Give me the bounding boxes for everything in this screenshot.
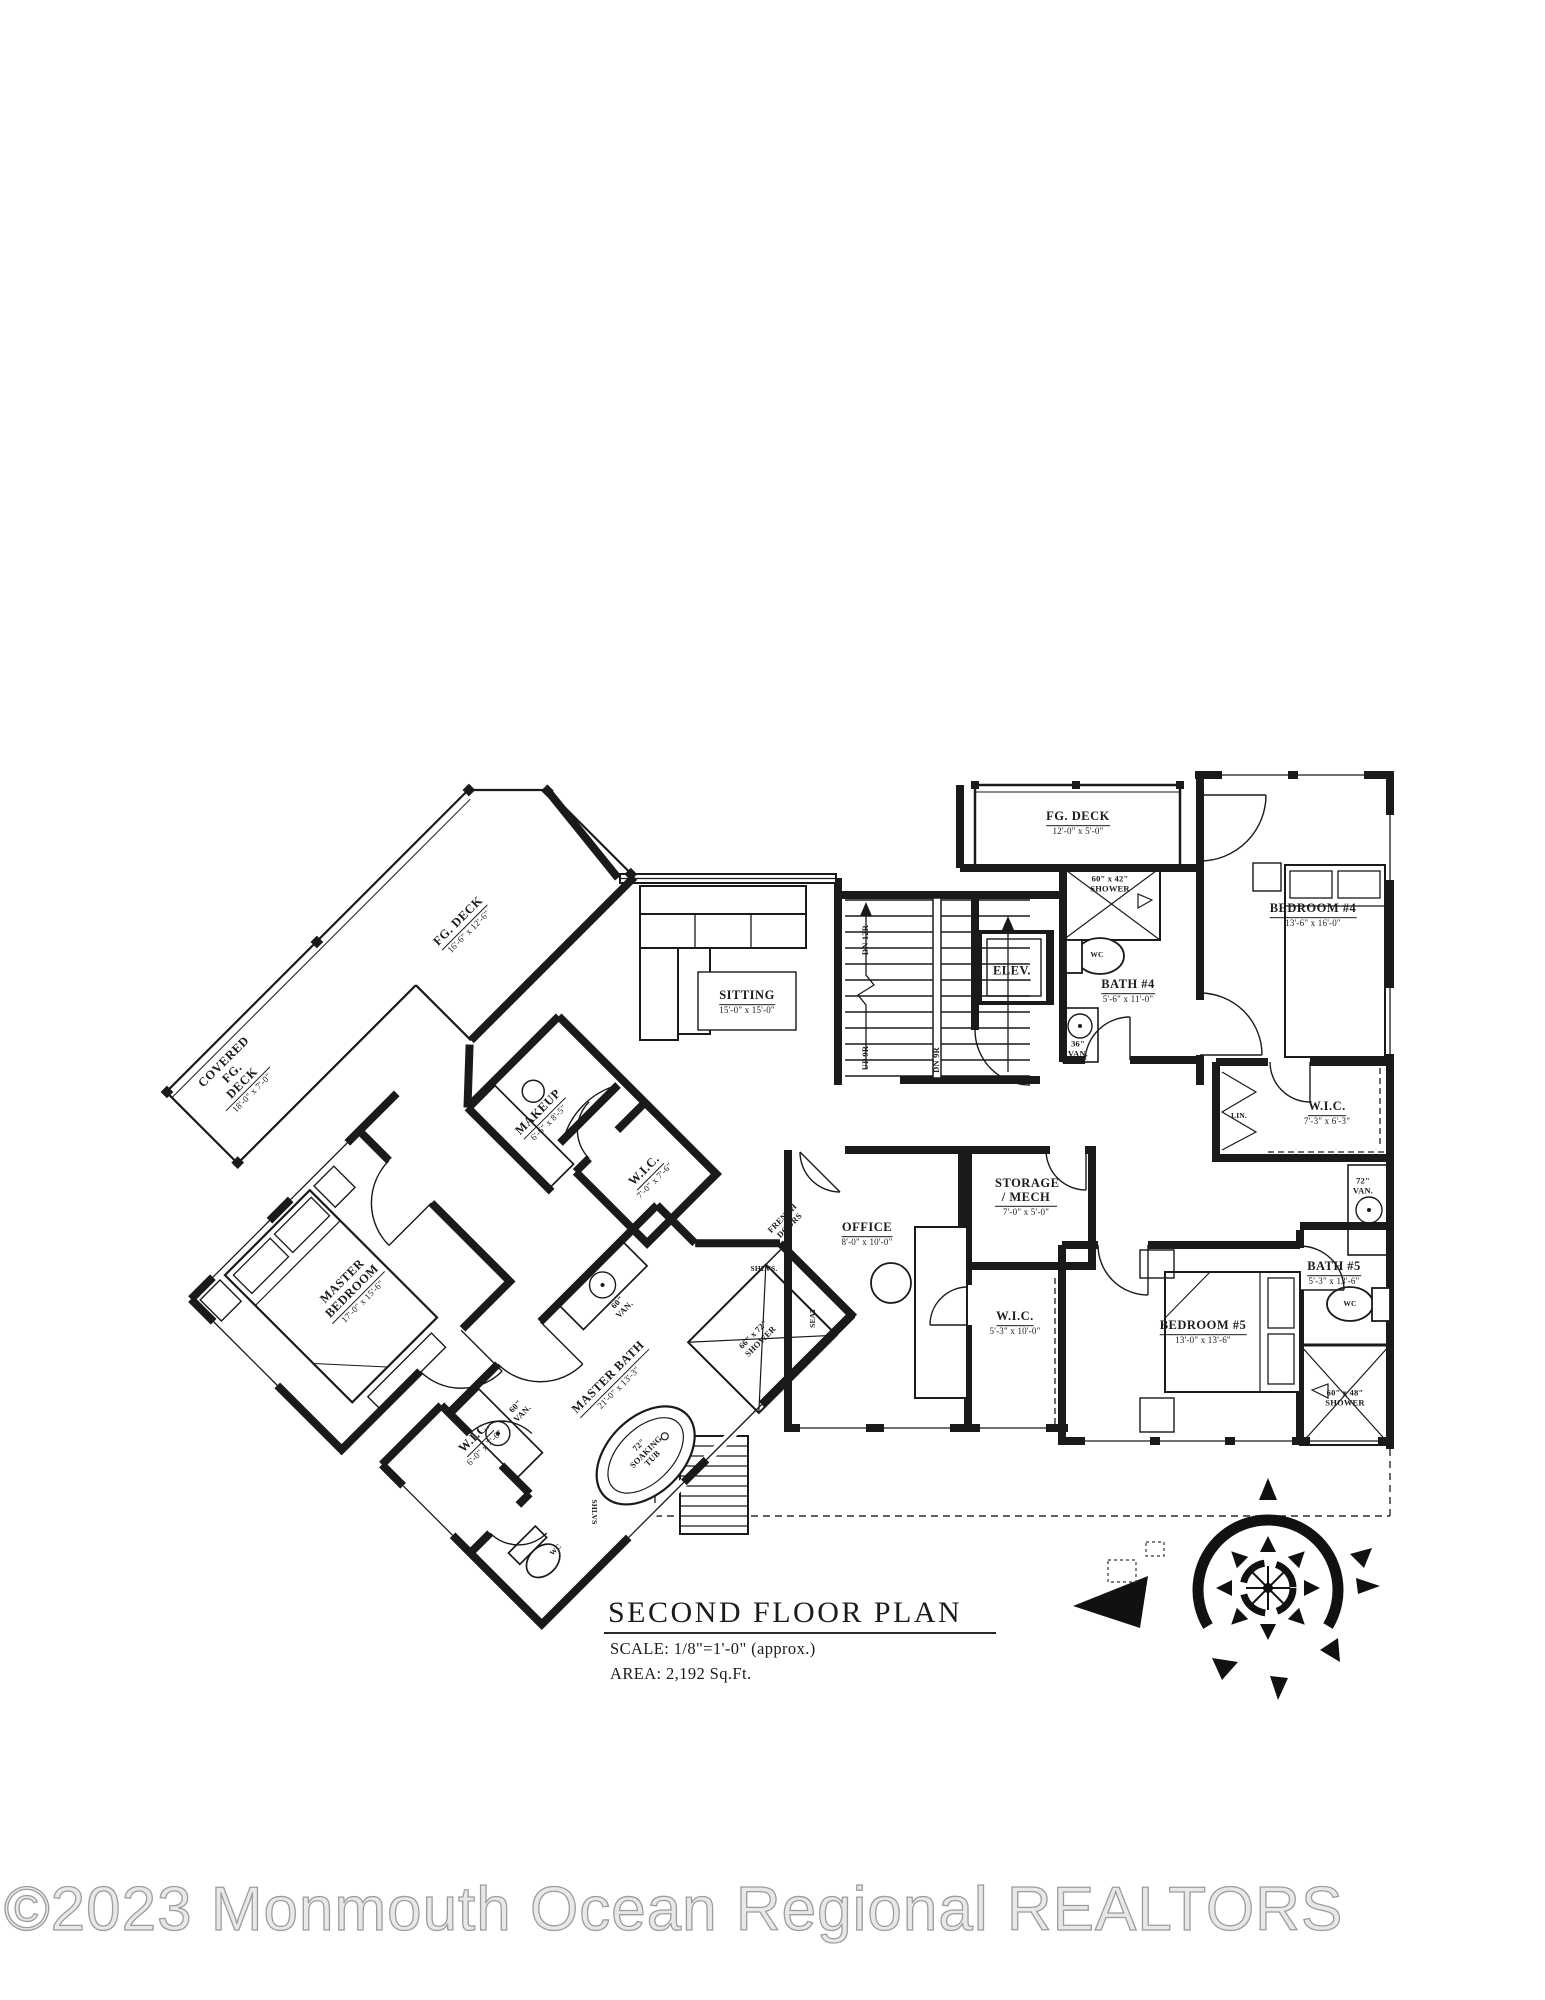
shower-size-label-bath4: 60" x 42" SHOWER xyxy=(1086,874,1134,893)
vanity-label-bath4: 36" VAN. xyxy=(1063,1039,1093,1058)
title-block: SECOND FLOOR PLAN SCALE: 1/8"=1'-0" (app… xyxy=(604,1596,996,1684)
room-label-wic-bedroom5: W.I.C.5'-3" x 10'-0" xyxy=(990,1307,1041,1337)
room-label-bath-5: BATH #55'-3" x 13'-6" xyxy=(1307,1257,1361,1287)
shelves-label-office: SHLVS. xyxy=(751,1265,778,1273)
shelves-label-master: SHLVS xyxy=(590,1500,598,1525)
shower-size-label-bath5: 60" x 48" SHOWER xyxy=(1321,1388,1369,1407)
room-label-wic-bedroom4: W.I.C.7'-3" x 6'-3" xyxy=(1304,1097,1350,1127)
wc-label-bath4: WC xyxy=(1090,951,1103,959)
vanity-label-bath5: 72" VAN. xyxy=(1348,1176,1378,1195)
room-label-bedroom-5: BEDROOM #513'-0" x 13'-6" xyxy=(1160,1316,1247,1346)
room-label-elevator: ELEV. xyxy=(993,962,1031,981)
stair-up-label: UP 9R xyxy=(861,1046,871,1070)
plan-scale: SCALE: 1/8"=1'-0" (approx.) xyxy=(604,1639,996,1659)
room-label-storage-mech: STORAGE / MECH7'-0" x 5'-0" xyxy=(995,1177,1057,1217)
plan-title: SECOND FLOOR PLAN xyxy=(604,1596,996,1634)
compass-rose xyxy=(1073,1478,1380,1700)
room-label-bath-4: BATH #45'-6" x 11'-0" xyxy=(1101,975,1155,1005)
plan-area: AREA: 2,192 Sq.Ft. xyxy=(604,1664,996,1684)
seat-label-shower: SEAT xyxy=(809,1308,817,1328)
room-label-sitting: SITTING15'-0" x 15'-0" xyxy=(719,986,775,1016)
stair-down2-label: DN 9R xyxy=(932,1047,942,1073)
room-label-office: OFFICE8'-0" x 10'-0" xyxy=(842,1218,893,1248)
stair-down-label: DN 12R xyxy=(861,925,871,955)
room-label-bedroom-4: BEDROOM #413'-6" x 16'-0" xyxy=(1270,899,1357,929)
floor-plan-page: FG. DECK12'-0" x 5'-0" BEDROOM #413'-6" … xyxy=(0,0,1545,2000)
wc-label-bath5: WC xyxy=(1343,1300,1356,1308)
watermark-text: ©2023 Monmouth Ocean Regional REALTORS xyxy=(4,1874,1343,1945)
linen-closet-label: LIN. xyxy=(1231,1112,1247,1120)
room-label-fg-deck-right: FG. DECK12'-0" x 5'-0" xyxy=(1046,807,1110,837)
